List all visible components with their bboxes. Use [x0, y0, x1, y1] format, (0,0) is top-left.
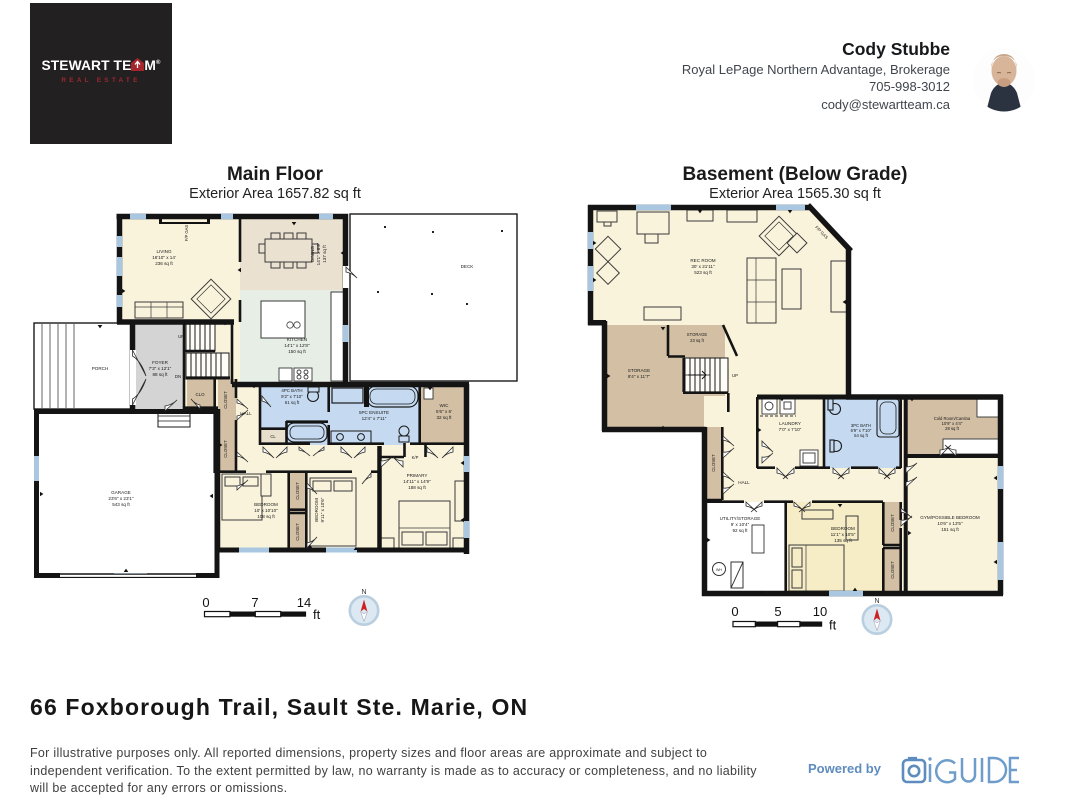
svg-text:11'1" x 10'5": 11'1" x 10'5": [831, 532, 856, 537]
svg-text:61 sq ft: 61 sq ft: [285, 400, 300, 405]
svg-text:7'3" x 12'1": 7'3" x 12'1": [149, 366, 172, 371]
svg-text:5PC ENSUITE: 5PC ENSUITE: [359, 410, 389, 415]
svg-text:CLO: CLO: [195, 392, 205, 397]
svg-text:150 sq ft: 150 sq ft: [288, 349, 306, 354]
svg-text:7'0" x 7'10": 7'0" x 7'10": [779, 427, 802, 432]
svg-text:0: 0: [731, 604, 738, 619]
svg-text:14'1" x 12'8": 14'1" x 12'8": [284, 343, 310, 348]
svg-text:7: 7: [251, 595, 258, 610]
svg-text:HALL: HALL: [738, 480, 750, 485]
svg-text:K/P: K/P: [412, 455, 419, 460]
svg-text:9'11" x 10'6": 9'11" x 10'6": [320, 497, 325, 522]
svg-text:UTILITY/STORAGE: UTILITY/STORAGE: [720, 516, 761, 521]
svg-text:137 sq ft: 137 sq ft: [322, 244, 327, 262]
svg-text:30' x 21'11": 30' x 21'11": [691, 264, 715, 269]
svg-text:CLOSET: CLOSET: [295, 523, 300, 541]
svg-text:GYM/POSSIBLE BEDROOM: GYM/POSSIBLE BEDROOM: [920, 515, 980, 520]
svg-text:KITCHEN: KITCHEN: [287, 337, 307, 342]
svg-text:23'6" x 23'1": 23'6" x 23'1": [108, 496, 134, 501]
svg-text:PORCH: PORCH: [92, 366, 109, 371]
svg-text:14'11" x 14'9": 14'11" x 14'9": [403, 479, 431, 484]
svg-text:FOYER: FOYER: [152, 360, 169, 365]
svg-text:23 sq ft: 23 sq ft: [690, 338, 705, 343]
svg-text:14'1" x 8'9": 14'1" x 8'9": [316, 242, 321, 265]
svg-text:9'2" x 7'10": 9'2" x 7'10": [281, 394, 303, 399]
svg-text:5'6" x 6': 5'6" x 6': [436, 409, 452, 414]
svg-text:GARAGE: GARAGE: [111, 490, 131, 495]
svg-text:32 sq ft: 32 sq ft: [436, 415, 452, 420]
svg-text:DECK: DECK: [461, 264, 475, 269]
svg-text:9' x 10'4": 9' x 10'4": [731, 522, 750, 527]
svg-text:BEDROOM: BEDROOM: [254, 502, 278, 507]
svg-text:CLOSET: CLOSET: [295, 482, 300, 500]
svg-text:108 sq ft: 108 sq ft: [257, 514, 275, 519]
svg-text:54 sq ft: 54 sq ft: [854, 433, 869, 438]
svg-text:12'4" x 7'11": 12'4" x 7'11": [362, 416, 387, 421]
svg-text:HALL: HALL: [240, 411, 252, 416]
svg-text:8'4" x 11'7": 8'4" x 11'7": [628, 374, 651, 379]
svg-text:UP: UP: [732, 373, 738, 378]
svg-text:16'10" x 14': 16'10" x 14': [152, 255, 176, 260]
svg-text:14: 14: [297, 595, 311, 610]
svg-text:BEDROOM: BEDROOM: [314, 498, 319, 522]
svg-text:88 sq ft: 88 sq ft: [152, 372, 168, 377]
svg-text:STORAGE: STORAGE: [628, 368, 650, 373]
svg-text:523 sq ft: 523 sq ft: [694, 270, 712, 275]
svg-text:REC ROOM: REC ROOM: [690, 258, 715, 263]
svg-text:10'6" x 13'5": 10'6" x 13'5": [937, 521, 963, 526]
svg-text:4PC BATH: 4PC BATH: [281, 388, 302, 393]
svg-text:543 sq ft: 543 sq ft: [112, 502, 130, 507]
svg-text:STORAGE: STORAGE: [687, 332, 708, 337]
svg-text:188 sq ft: 188 sq ft: [408, 485, 426, 490]
svg-text:5: 5: [774, 604, 781, 619]
svg-text:CLOSET: CLOSET: [711, 454, 716, 472]
svg-text:92 sq ft: 92 sq ft: [732, 528, 748, 533]
svg-text:135 sq ft: 135 sq ft: [834, 538, 852, 543]
svg-text:F/P GAS: F/P GAS: [184, 225, 189, 242]
svg-text:WH: WH: [716, 568, 723, 572]
svg-text:ft: ft: [829, 618, 837, 633]
svg-text:CLOSET: CLOSET: [223, 440, 228, 458]
svg-text:151 sq ft: 151 sq ft: [941, 527, 959, 532]
svg-text:BEDROOM: BEDROOM: [831, 526, 855, 531]
svg-text:UP: UP: [178, 334, 184, 339]
svg-text:N: N: [361, 589, 366, 596]
svg-text:236 sq ft: 236 sq ft: [155, 261, 173, 266]
svg-text:CLOSET: CLOSET: [890, 561, 895, 579]
svg-text:PRIMARY: PRIMARY: [407, 473, 428, 478]
svg-text:LIVING: LIVING: [156, 249, 171, 254]
svg-text:DN: DN: [175, 374, 181, 379]
svg-text:DINING: DINING: [310, 246, 315, 263]
svg-text:10: 10: [813, 604, 827, 619]
svg-text:N: N: [874, 598, 879, 605]
svg-text:28 sq ft: 28 sq ft: [945, 426, 960, 431]
svg-text:WIC: WIC: [440, 403, 450, 408]
svg-text:10' x 10'10": 10' x 10'10": [254, 508, 278, 513]
svg-text:ft: ft: [313, 607, 321, 622]
svg-text:CL: CL: [270, 434, 276, 439]
svg-text:CLOSET: CLOSET: [223, 391, 228, 409]
svg-text:CLOSET: CLOSET: [890, 514, 895, 532]
svg-text:0: 0: [202, 595, 209, 610]
svg-text:LAUNDRY: LAUNDRY: [779, 421, 801, 426]
